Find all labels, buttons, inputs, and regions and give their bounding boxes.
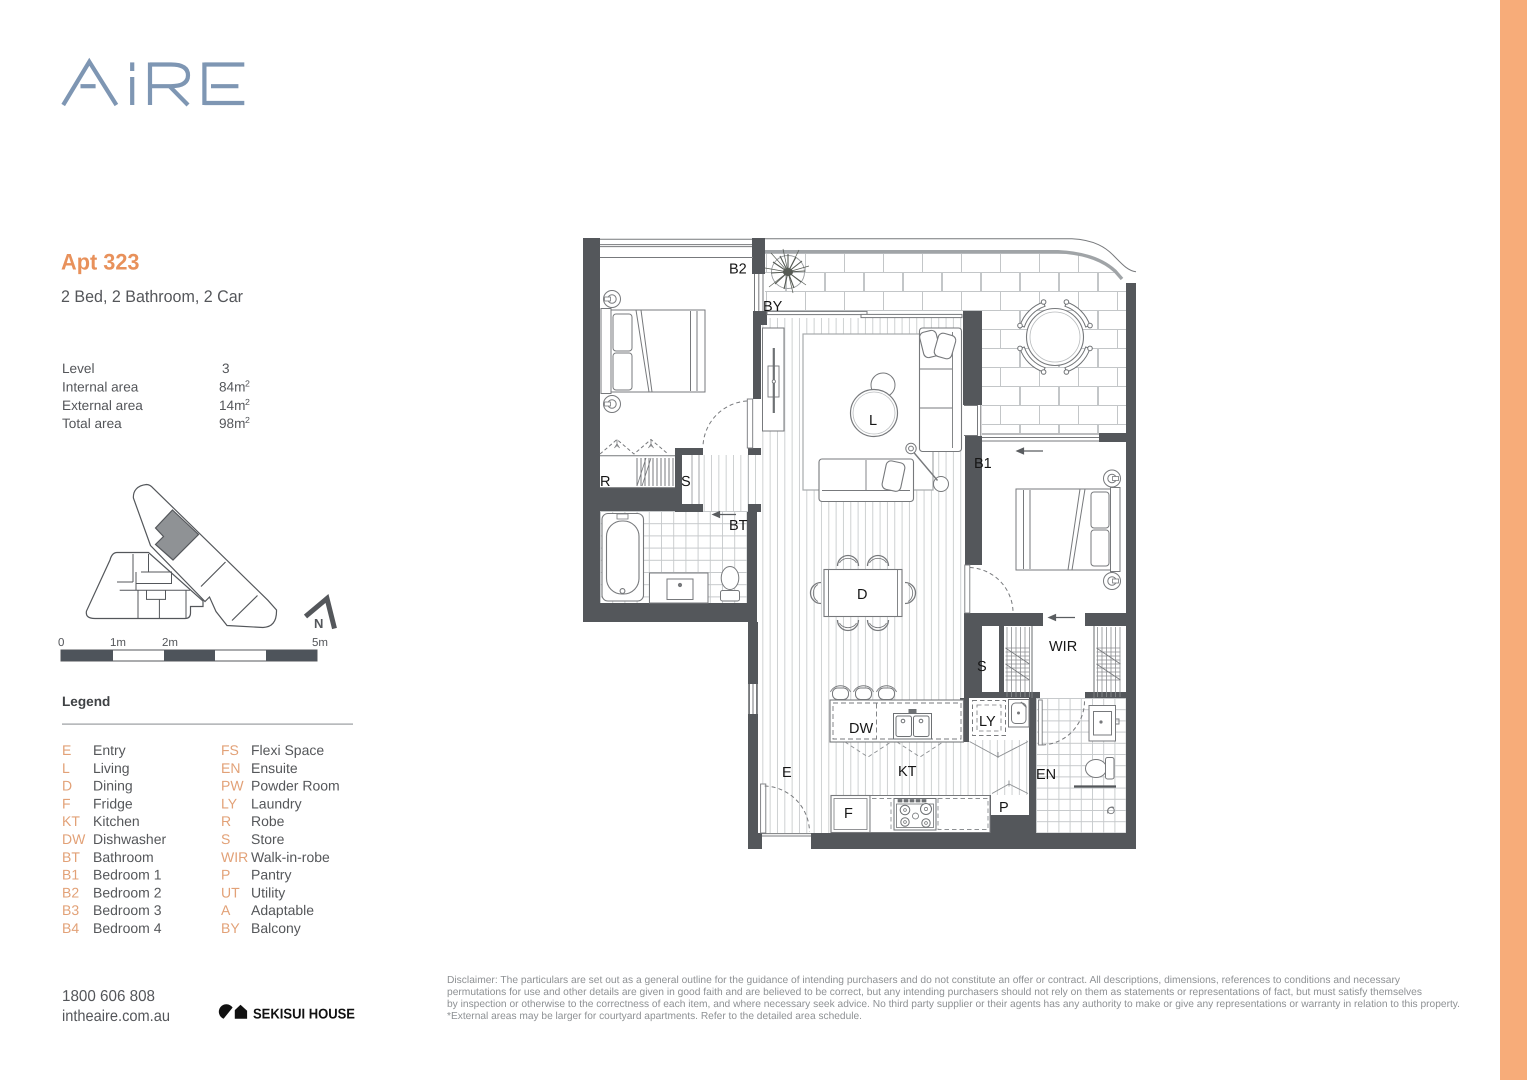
svg-text:Balcony: Balcony [251,920,301,936]
svg-text:2: 2 [245,415,250,425]
svg-text:LY: LY [979,714,996,730]
svg-text:L: L [869,413,877,429]
svg-text:BT: BT [62,849,80,865]
svg-text:WIR: WIR [1049,639,1077,655]
svg-text:*External areas may be larger: *External areas may be larger for courty… [447,1011,862,1022]
svg-text:E: E [62,742,71,758]
svg-text:Adaptable: Adaptable [251,902,314,918]
svg-text:R: R [600,474,610,490]
svg-text:B3: B3 [62,902,79,918]
svg-text:External area: External area [62,398,143,413]
svg-text:R: R [221,813,231,829]
svg-text:2 Bed, 2 Bathroom, 2 Car: 2 Bed, 2 Bathroom, 2 Car [61,287,243,306]
svg-text:0: 0 [58,637,64,649]
svg-text:Pantry: Pantry [251,867,291,883]
svg-text:permutations for use and other: permutations for use and other details a… [447,987,1422,998]
svg-text:BY: BY [763,299,783,315]
svg-text:F: F [844,806,853,822]
svg-text:S: S [681,474,691,490]
svg-text:Ensuite: Ensuite [251,760,298,776]
svg-text:FS: FS [221,742,239,758]
svg-text:Apt 323: Apt 323 [61,250,140,275]
svg-text:P: P [221,867,230,883]
svg-text:by inspection or otherwise to: by inspection or otherwise to the correc… [447,999,1460,1010]
svg-text:1m: 1m [110,637,126,649]
svg-text:KT: KT [898,764,917,780]
svg-text:Bathroom: Bathroom [93,849,154,865]
svg-text:Disclaimer: The particulars ar: Disclaimer: The particulars are set out … [447,975,1401,986]
svg-text:Walk-in-robe: Walk-in-robe [251,849,330,865]
svg-text:S: S [977,659,987,675]
svg-text:SEKISUI HOUSE: SEKISUI HOUSE [253,1007,355,1023]
svg-text:DW: DW [62,831,86,847]
svg-text:BY: BY [221,920,240,936]
svg-text:Level: Level [62,361,95,376]
svg-text:Internal area: Internal area [62,380,139,395]
svg-text:1800 606 808: 1800 606 808 [62,988,155,1005]
svg-text:Bedroom 3: Bedroom 3 [93,902,162,918]
svg-text:Store: Store [251,831,285,847]
svg-text:5m: 5m [312,637,328,649]
svg-text:D: D [857,587,867,603]
svg-text:Laundry: Laundry [251,795,302,811]
svg-text:Entry: Entry [93,742,126,758]
svg-text:14m: 14m [219,398,245,413]
svg-text:84m: 84m [219,380,245,395]
svg-text:P: P [999,800,1009,816]
svg-text:BT: BT [729,518,748,534]
svg-text:Bedroom 4: Bedroom 4 [93,920,162,936]
svg-text:N: N [314,616,323,631]
svg-text:S: S [221,831,230,847]
svg-text:Dining: Dining [93,778,133,794]
svg-text:EN: EN [1036,767,1056,783]
svg-text:DW: DW [849,721,873,737]
svg-text:KT: KT [62,813,80,829]
svg-text:Utility: Utility [251,884,285,900]
svg-text:L: L [62,760,70,776]
svg-text:EN: EN [221,760,240,776]
svg-text:D: D [62,778,72,794]
svg-text:Legend: Legend [62,694,110,709]
svg-text:3: 3 [222,361,230,376]
svg-text:Living: Living [93,760,130,776]
svg-text:2: 2 [245,397,250,407]
svg-text:intheaire.com.au: intheaire.com.au [62,1008,170,1025]
svg-text:UT: UT [221,884,240,900]
svg-text:A: A [221,902,231,918]
svg-text:B1: B1 [974,456,992,472]
svg-text:WIR: WIR [221,849,248,865]
svg-text:B4: B4 [62,920,79,936]
svg-text:Bedroom 1: Bedroom 1 [93,867,162,883]
svg-text:Kitchen: Kitchen [93,813,140,829]
svg-text:B1: B1 [62,867,79,883]
svg-text:Dishwasher: Dishwasher [93,831,166,847]
svg-text:Bedroom 2: Bedroom 2 [93,884,162,900]
svg-text:F: F [62,795,71,811]
svg-text:Powder Room: Powder Room [251,778,340,794]
svg-text:Flexi Space: Flexi Space [251,742,324,758]
svg-text:Total area: Total area [62,416,122,431]
svg-text:B2: B2 [62,884,79,900]
svg-text:PW: PW [221,778,244,794]
svg-text:E: E [782,765,792,781]
svg-text:98m: 98m [219,416,245,431]
svg-text:Robe: Robe [251,813,285,829]
svg-text:2m: 2m [162,637,178,649]
svg-text:Fridge: Fridge [93,795,133,811]
svg-text:LY: LY [221,795,238,811]
svg-text:B2: B2 [729,262,747,278]
svg-text:2: 2 [245,379,250,389]
